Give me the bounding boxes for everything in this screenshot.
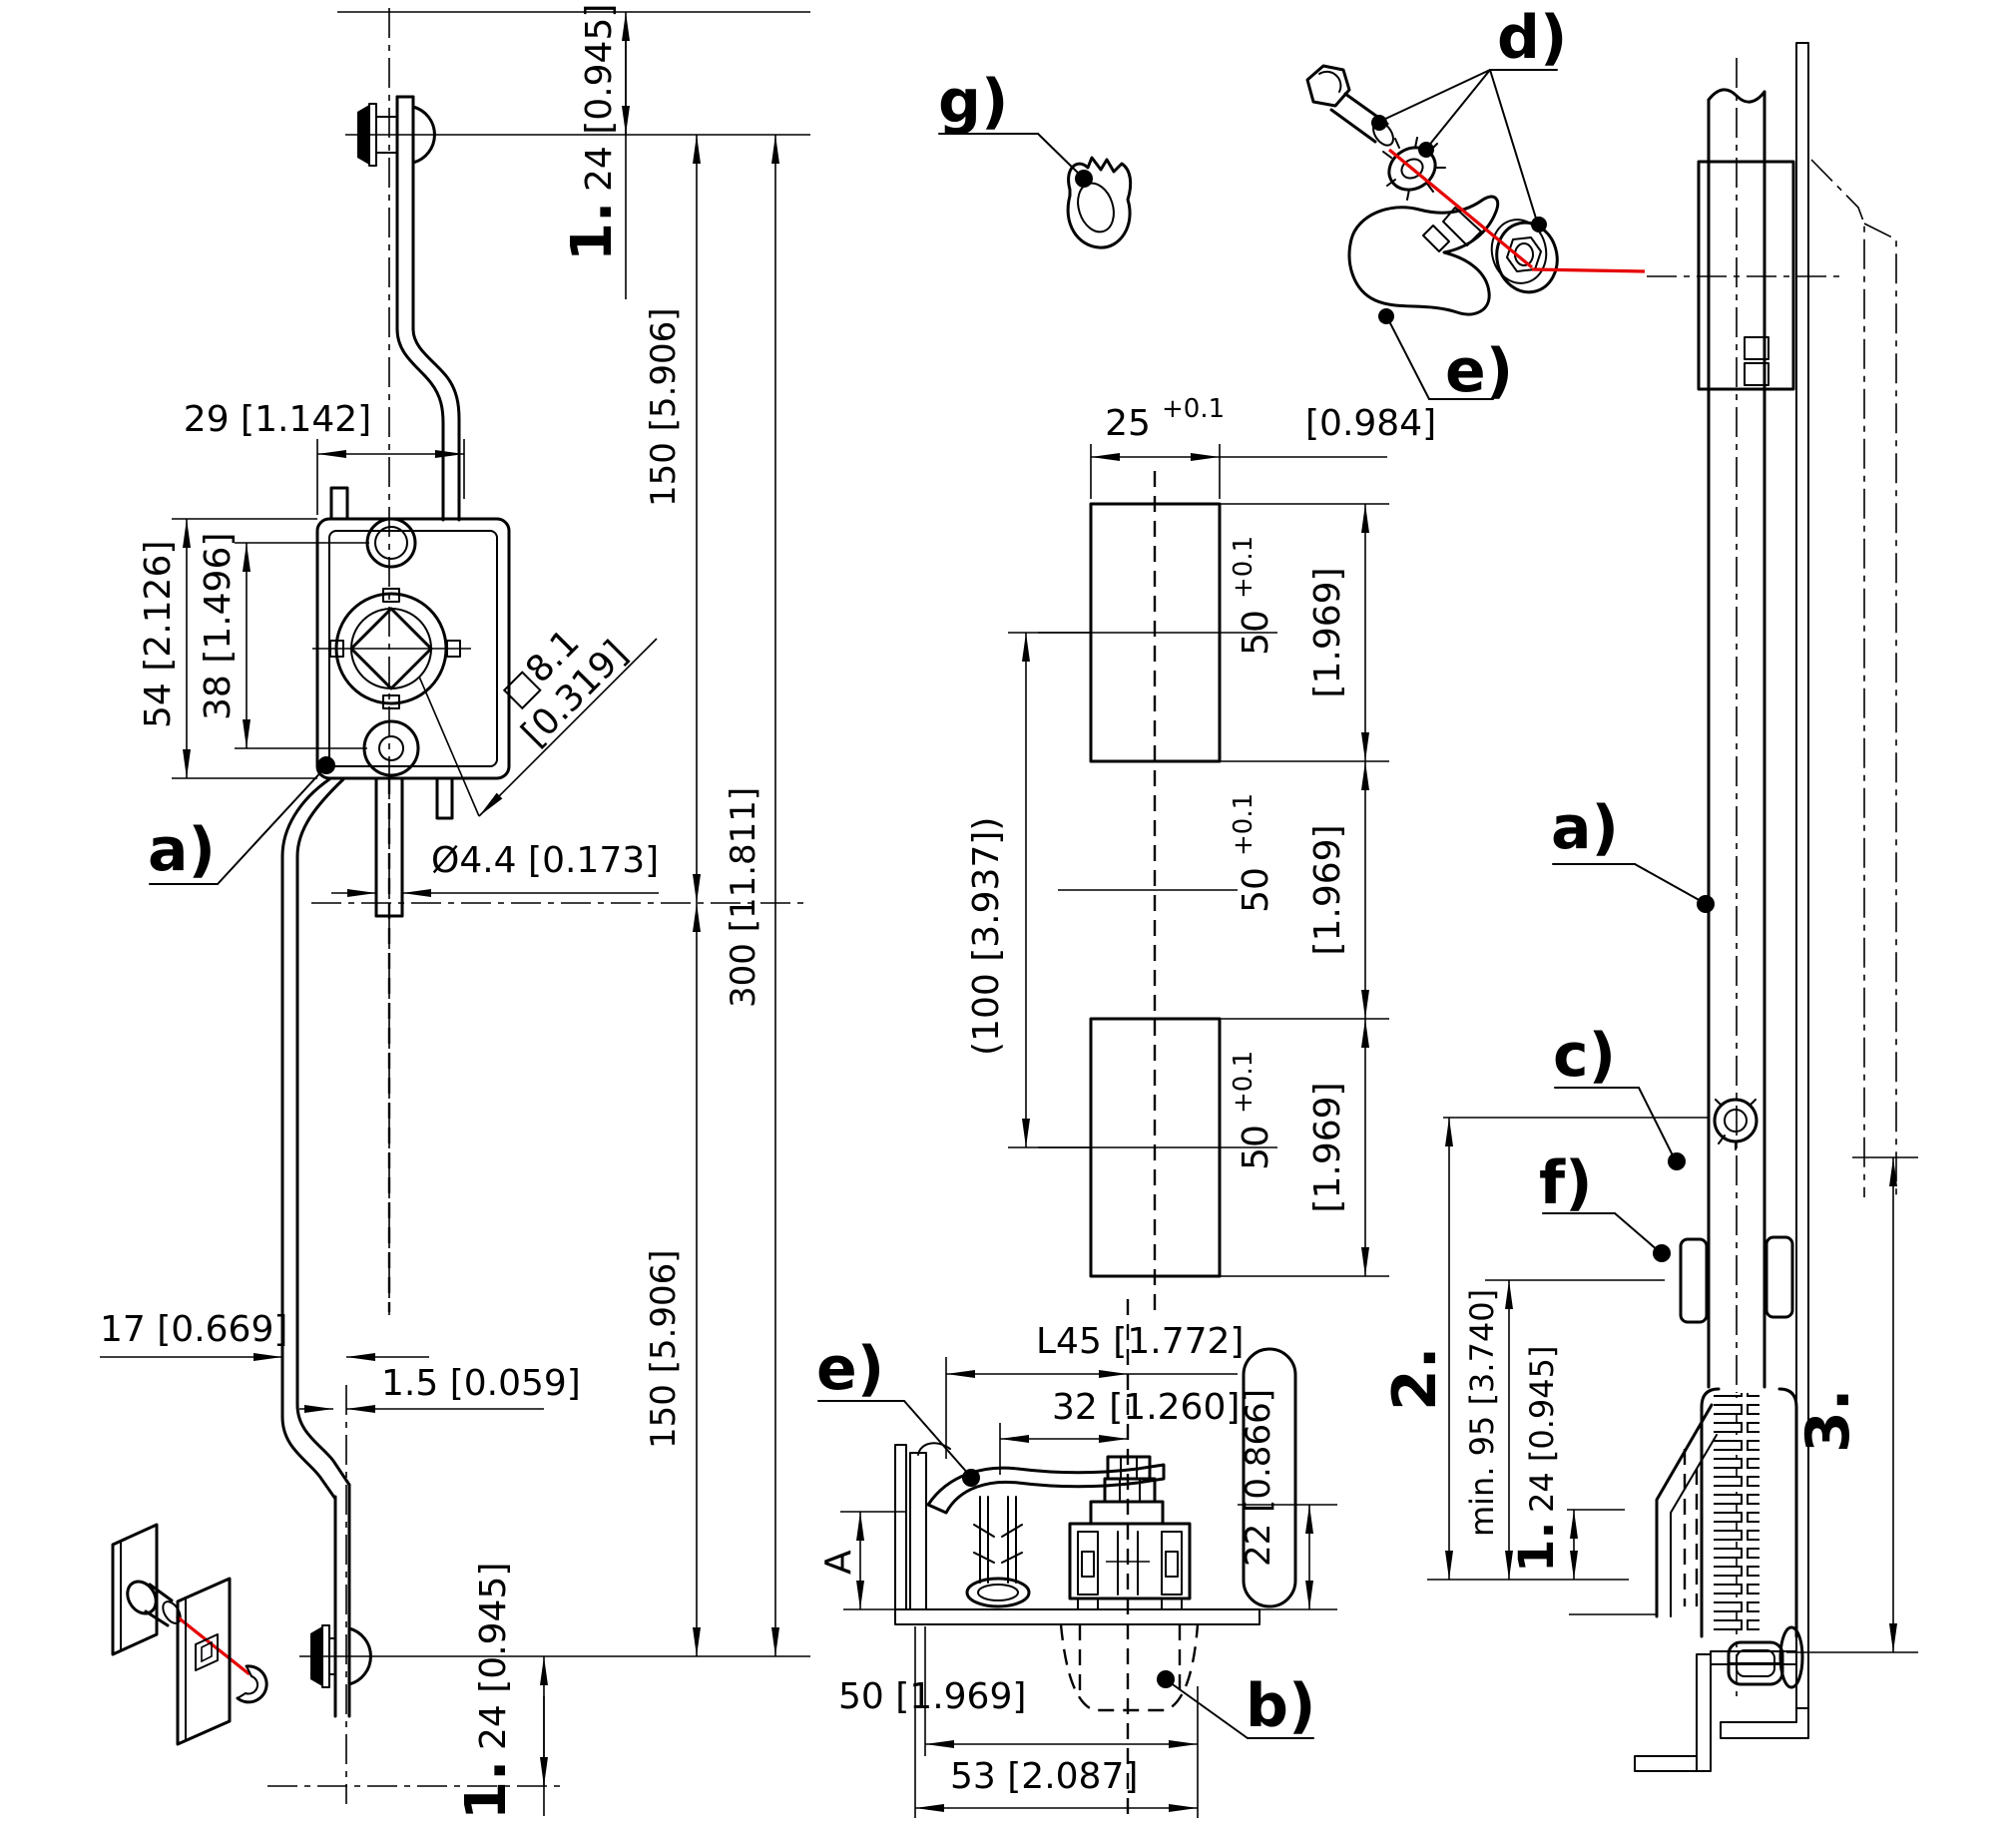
left-view: 1. 24 [0.945] 150 [5.906] 300 [11.811] 1… bbox=[100, 4, 810, 1820]
dim-29: 29 [1.142] bbox=[184, 399, 464, 515]
dim-29-text: 29 [1.142] bbox=[184, 399, 371, 440]
dim-step3: 3. bbox=[1786, 1157, 1918, 1652]
step-1-top: 1. bbox=[560, 202, 625, 261]
dim-25: 25 +0.1 [0.984] bbox=[1091, 394, 1436, 499]
dim-1-5-text: 1.5 [0.059] bbox=[381, 1363, 581, 1404]
dim-300-text: 300 [11.811] bbox=[724, 787, 763, 1008]
keeper-bracket bbox=[1635, 1651, 1796, 1771]
dim-50-bottom-inch: [1.969] bbox=[1307, 1082, 1348, 1212]
leader-dot bbox=[1668, 1152, 1686, 1170]
dim-4-4-text: Ø4.4 [0.173] bbox=[431, 840, 659, 881]
dim-50-top-value: 50 bbox=[1236, 610, 1276, 656]
leader-dot bbox=[1371, 115, 1387, 131]
part-label-b-text: b) bbox=[1246, 1671, 1315, 1741]
part-label-e-top: e) bbox=[1378, 308, 1513, 406]
dim-53-text: 53 [2.087] bbox=[950, 1756, 1138, 1797]
cam-hidden-outline bbox=[1061, 1624, 1198, 1710]
dim-150-bottom: 150 [5.906] bbox=[644, 903, 697, 1656]
drawing-svg: 1. 24 [0.945] 150 [5.906] 300 [11.811] 1… bbox=[0, 0, 2016, 1821]
dim-L45-text: L45 [1.772] bbox=[1036, 1321, 1244, 1362]
dim-53: 53 [2.087] bbox=[915, 1626, 1198, 1818]
guide-block-left bbox=[1681, 1239, 1707, 1322]
cam-lever bbox=[1349, 197, 1498, 314]
assembly-axis-red2 bbox=[1532, 269, 1645, 271]
dim-50-mid-inch: [1.969] bbox=[1307, 824, 1348, 955]
dim-24-top: 1. 24 [0.945] bbox=[560, 4, 626, 299]
dim-50-section-text: 50 [1.969] bbox=[838, 1676, 1026, 1717]
part-label-a-right-text: a) bbox=[1551, 793, 1619, 863]
dim-50-top-tol: +0.1 bbox=[1229, 536, 1259, 599]
dim-A-text: A bbox=[818, 1550, 859, 1575]
part-label-d-text: d) bbox=[1497, 3, 1567, 73]
part-label-a-left-text: a) bbox=[148, 815, 216, 885]
dim-38-text: 38 [1.496] bbox=[198, 533, 239, 720]
dim-4-4: Ø4.4 [0.173] bbox=[331, 840, 659, 893]
leader-dot bbox=[1075, 170, 1093, 188]
wall-flange bbox=[1721, 1708, 1808, 1738]
technical-drawing: 1. 24 [0.945] 150 [5.906] 300 [11.811] 1… bbox=[0, 0, 2016, 1821]
step-2-text: 2. bbox=[1380, 1346, 1450, 1411]
dim-22: 22 [0.866] bbox=[1239, 1349, 1309, 1609]
lower-latch bbox=[1569, 1389, 1802, 1687]
dim-50-bottom: 50 +0.1 [1.969] bbox=[1229, 1019, 1365, 1276]
dim-50-bottom-value: 50 bbox=[1236, 1125, 1276, 1170]
pin-icon bbox=[122, 1577, 184, 1626]
square-spindle-hole bbox=[312, 589, 471, 708]
dim-150-bottom-text: 150 [5.906] bbox=[644, 1249, 684, 1449]
slotted-plate bbox=[178, 1579, 230, 1744]
dim-50-top: 50 +0.1 [1.969] bbox=[1229, 504, 1365, 761]
mounting-wall bbox=[895, 1445, 906, 1609]
clip-spring bbox=[967, 1497, 1029, 1606]
dim-24-bottom-text: 24 [0.945] bbox=[473, 1563, 514, 1750]
leader-dot bbox=[317, 756, 335, 774]
part-label-f: f) bbox=[1539, 1148, 1671, 1262]
latch-body bbox=[312, 488, 509, 818]
part-label-e-bottom: e) bbox=[816, 1334, 980, 1487]
body-bottom-tab bbox=[437, 778, 452, 818]
dim-54-text: 54 [2.126] bbox=[138, 541, 179, 728]
dim-24-side: 1. 24 [0.945] bbox=[1509, 1346, 1625, 1580]
dim-50-top-inch: [1.969] bbox=[1307, 567, 1348, 697]
step-3-text: 3. bbox=[1793, 1388, 1863, 1453]
grommet-part: g) bbox=[938, 67, 1131, 247]
dim-300: 300 [11.811] bbox=[724, 135, 775, 1656]
lower-rod bbox=[282, 778, 402, 1716]
dim-24-top-text: 24 [0.945] bbox=[579, 4, 620, 192]
section-view: 22 [0.866] A L45 [1.772] 32 [1.260] 50 [… bbox=[816, 1299, 1337, 1818]
dim-24-side-text: 24 [0.945] bbox=[1523, 1346, 1561, 1513]
dim-50-mid-value: 50 bbox=[1236, 867, 1276, 913]
wall-panel bbox=[1796, 43, 1808, 1708]
leader-dot bbox=[1697, 895, 1715, 913]
lock-base bbox=[1070, 1457, 1190, 1609]
base-plate bbox=[895, 1609, 1260, 1624]
dim-17: 17 [0.669] bbox=[100, 1309, 429, 1357]
dim-25-tol: +0.1 bbox=[1162, 394, 1225, 424]
dim-25-inch: [0.984] bbox=[1305, 403, 1436, 444]
part-label-a-right: a) bbox=[1551, 793, 1715, 913]
exploded-view: d) e) bbox=[1307, 3, 1645, 406]
leader-dot bbox=[1418, 142, 1434, 158]
dim-8-1: □8.1 [0.319] bbox=[419, 604, 657, 816]
dim-50-mid: 50 +0.1 [1.969] bbox=[1229, 761, 1365, 1019]
dim-17-text: 17 [0.669] bbox=[100, 1309, 287, 1350]
e-clip-icon bbox=[238, 1666, 266, 1702]
leader-dot bbox=[1531, 217, 1547, 232]
lock-bushing-icon bbox=[1486, 215, 1564, 297]
dim-24-bottom: 1. 24 [0.945] bbox=[454, 1563, 544, 1820]
pin-clip-inset bbox=[113, 1525, 266, 1744]
dim-32-text: 32 [1.260] bbox=[1052, 1387, 1240, 1428]
part-label-f-text: f) bbox=[1539, 1148, 1593, 1218]
dim-22-text: 22 [0.866] bbox=[1239, 1389, 1278, 1567]
dim-150-top-text: 150 [5.906] bbox=[644, 307, 684, 507]
body-top-tab bbox=[331, 488, 347, 519]
upper-rod bbox=[397, 97, 459, 520]
part-label-d: d) bbox=[1371, 3, 1567, 232]
leader-dot bbox=[962, 1469, 980, 1487]
step-1-side: 1. bbox=[1509, 1521, 1565, 1573]
panel-plate bbox=[113, 1525, 157, 1654]
dim-50-mid-tol: +0.1 bbox=[1229, 793, 1259, 856]
lock-housing bbox=[1699, 162, 1793, 389]
dim-25-value: 25 bbox=[1105, 403, 1151, 444]
dim-150-top: 150 [5.906] bbox=[644, 135, 697, 903]
side-view: 2. min. 95 [3.740] 1. 24 [0.945] 3. a) c… bbox=[1380, 43, 1918, 1771]
dim-1-5: 1.5 [0.059] bbox=[299, 1363, 581, 1409]
dim-50-bottom-tol: +0.1 bbox=[1229, 1051, 1259, 1114]
bolt-icon bbox=[1307, 66, 1397, 149]
leader-dot bbox=[1378, 308, 1394, 324]
dim-min95-text: min. 95 [3.740] bbox=[1463, 1289, 1501, 1537]
assembly-axis-red bbox=[177, 1616, 250, 1674]
dim-A: A bbox=[818, 1512, 906, 1609]
part-label-e-bottom-text: e) bbox=[816, 1334, 884, 1404]
leader-dot bbox=[1157, 1670, 1175, 1688]
part-label-e-top-text: e) bbox=[1445, 336, 1513, 406]
step-1-bottom: 1. bbox=[454, 1760, 519, 1820]
guide-block-right bbox=[1766, 1237, 1792, 1317]
leader-dot bbox=[1653, 1244, 1671, 1262]
door-outline bbox=[1811, 160, 1864, 1197]
dim-100-text: (100 [3.937]) bbox=[966, 817, 1007, 1056]
cutout-view: 25 +0.1 [0.984] 50 +0.1 [1.969] 50 +0.1 … bbox=[966, 394, 1436, 1319]
part-label-c-text: c) bbox=[1553, 1021, 1616, 1091]
part-label-g-text: g) bbox=[938, 67, 1008, 137]
